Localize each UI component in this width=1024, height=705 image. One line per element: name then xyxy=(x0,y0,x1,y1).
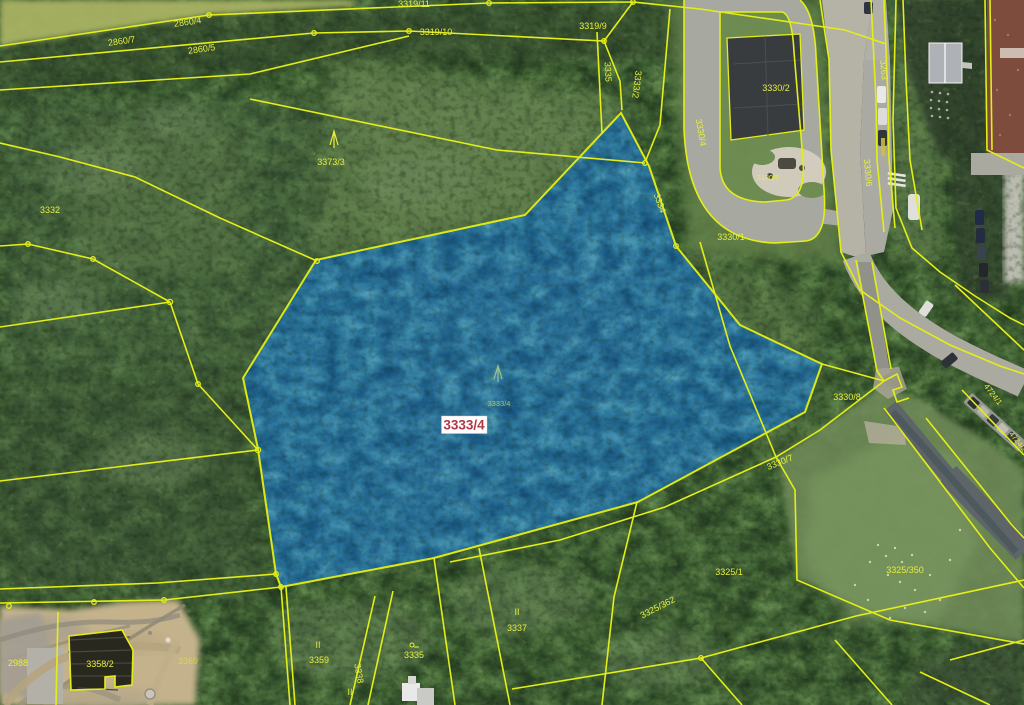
svg-text:3325/350: 3325/350 xyxy=(886,565,924,575)
svg-text:3369: 3369 xyxy=(178,656,198,666)
svg-text:3359: 3359 xyxy=(309,655,329,665)
svg-text:3335: 3335 xyxy=(404,650,424,660)
svg-text:3373/3: 3373/3 xyxy=(317,157,345,167)
svg-text:2988: 2988 xyxy=(8,658,28,668)
svg-text:II: II xyxy=(315,640,320,650)
svg-text:3330/2: 3330/2 xyxy=(762,83,790,93)
svg-text:3319/9: 3319/9 xyxy=(579,21,607,31)
svg-text:3335: 3335 xyxy=(602,62,613,83)
svg-text:II: II xyxy=(514,607,519,617)
svg-text:3333/4: 3333/4 xyxy=(488,399,511,408)
svg-text:3332: 3332 xyxy=(40,205,60,215)
svg-text:3330/8: 3330/8 xyxy=(833,392,861,402)
svg-text:3263: 3263 xyxy=(878,59,890,80)
svg-text:3330/5: 3330/5 xyxy=(757,173,780,182)
svg-text:3337: 3337 xyxy=(507,623,527,633)
svg-text:II: II xyxy=(347,687,352,697)
svg-text:3330/1: 3330/1 xyxy=(717,232,745,242)
svg-text:3319/10: 3319/10 xyxy=(420,27,453,37)
svg-text:3333/4: 3333/4 xyxy=(443,418,485,433)
svg-text:3358/2: 3358/2 xyxy=(86,659,114,669)
svg-text:3325/1: 3325/1 xyxy=(715,567,743,577)
svg-text:3319/11: 3319/11 xyxy=(398,0,430,9)
